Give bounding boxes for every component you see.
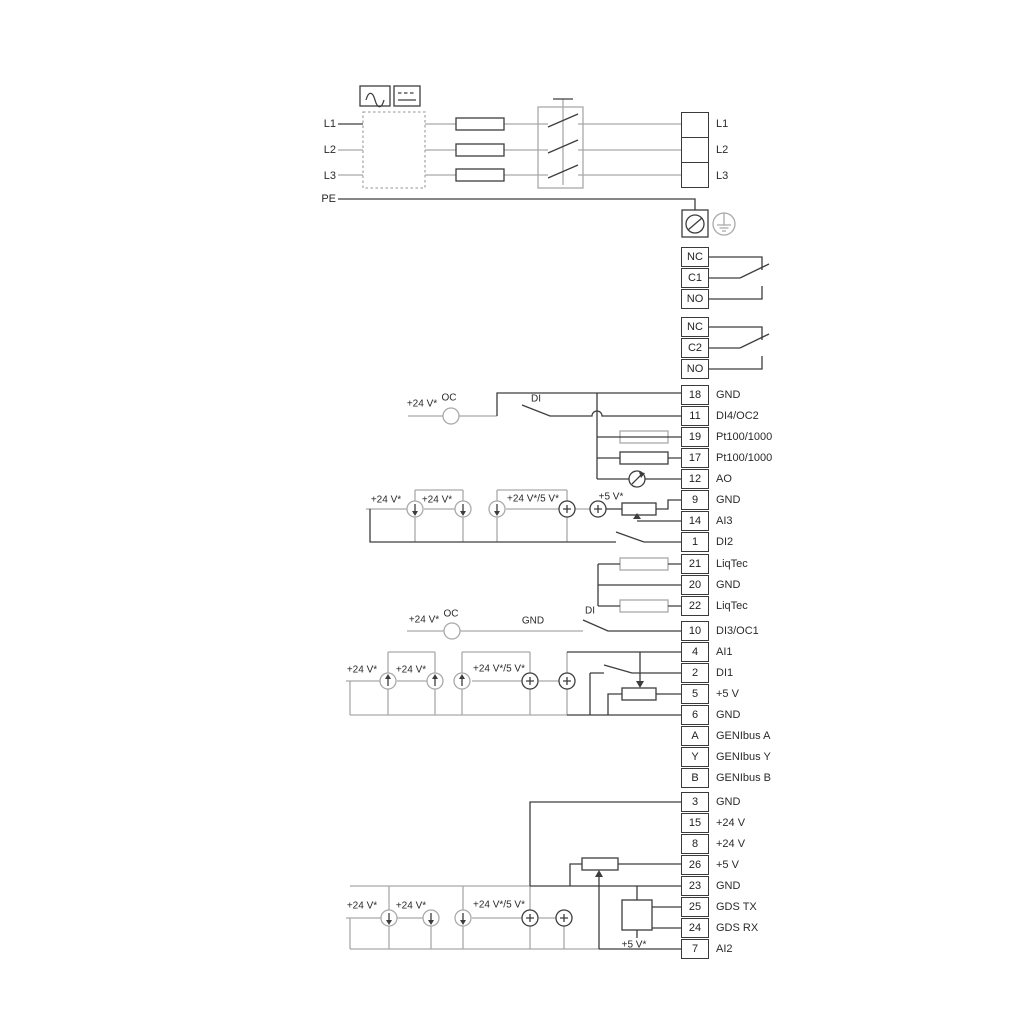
power-input-label-l1: L1 <box>324 118 336 130</box>
terminal-cell: B <box>681 768 709 788</box>
power-output-label-l1: L1 <box>716 118 728 130</box>
power-terminal-l2 <box>681 137 709 163</box>
voltage-annotation: +5 V* <box>622 940 647 951</box>
terminal-label: GND <box>716 796 740 808</box>
terminal-cell: 11 <box>681 406 709 426</box>
wiring-svg <box>0 0 1024 1024</box>
terminal-label: AO <box>716 473 732 485</box>
pe-label: PE <box>321 193 336 205</box>
voltage-annotation: +24 V* <box>422 495 452 506</box>
di-annotation: DI <box>585 606 595 617</box>
ac-symbol-icon <box>360 86 390 107</box>
fuse-symbol <box>456 118 504 130</box>
voltage-annotation: +5 V* <box>599 492 624 503</box>
terminal-label: AI1 <box>716 646 733 658</box>
power-input-label-l3: L3 <box>324 170 336 182</box>
terminal-cell: 26 <box>681 855 709 875</box>
terminal-cell: 6 <box>681 705 709 725</box>
terminal-label: Pt100/1000 <box>716 431 772 443</box>
terminal-c2: C2 <box>681 338 709 358</box>
gray-wiring <box>338 99 735 949</box>
gds-sensor-box <box>622 900 652 930</box>
voltage-annotation: +24 V*/5 V* <box>507 494 559 505</box>
terminal-label: DI2 <box>716 536 733 548</box>
terminal-label: GND <box>716 880 740 892</box>
power-terminal-l1 <box>681 112 709 138</box>
terminal-label: GND <box>716 494 740 506</box>
terminal-label: Pt100/1000 <box>716 452 772 464</box>
terminal-label: DI3/OC1 <box>716 625 759 637</box>
terminal-label: GND <box>716 709 740 721</box>
relay-contact-symbol <box>709 257 769 299</box>
terminal-label: GENIbus B <box>716 772 771 784</box>
terminal-cell: 17 <box>681 448 709 468</box>
fuse-symbol <box>456 144 504 156</box>
fuse-symbol <box>456 169 504 181</box>
terminal-cell: 9 <box>681 490 709 510</box>
terminal-cell: 7 <box>681 939 709 959</box>
pe-wire <box>338 199 695 211</box>
gnd-annotation: GND <box>522 616 544 627</box>
di-annotation: DI <box>531 394 541 405</box>
power-output-label-l2: L2 <box>716 144 728 156</box>
dc-symbol-icon <box>394 86 420 106</box>
terminal-label: GDS RX <box>716 922 758 934</box>
terminal-nc2: NC <box>681 317 709 337</box>
terminal-cell: 14 <box>681 511 709 531</box>
terminal-cell: 22 <box>681 596 709 616</box>
open-collector-circle-icon <box>444 623 460 639</box>
terminal-label: LiqTec <box>716 600 748 612</box>
oc-annotation: OC <box>444 609 459 620</box>
terminal-label: DI4/OC2 <box>716 410 759 422</box>
terminal-cell: 24 <box>681 918 709 938</box>
resistor-symbol-22 <box>620 600 668 612</box>
voltage-annotation: +24 V* <box>396 665 426 676</box>
voltage-annotation: +24 V* <box>347 665 377 676</box>
terminal-label: GENIbus A <box>716 730 770 742</box>
terminal-cell: 23 <box>681 876 709 896</box>
terminal-label: GDS TX <box>716 901 757 913</box>
potentiometer-symbol <box>622 688 656 700</box>
open-collector-circle-icon <box>443 408 459 424</box>
filter-dashed-box <box>363 112 425 188</box>
earth-ground-icon <box>713 213 735 235</box>
digital-input-switch <box>522 405 681 416</box>
power-terminal-l3 <box>681 162 709 188</box>
voltage-annotation: +24 V* <box>396 901 426 912</box>
analog-output-meter-icon <box>629 471 645 487</box>
terminal-cell: Y <box>681 747 709 767</box>
terminal-label: AI3 <box>716 515 733 527</box>
terminal-cell: 5 <box>681 684 709 704</box>
terminal-cell: 21 <box>681 554 709 574</box>
terminal-cell: 3 <box>681 792 709 812</box>
resistor-symbol-17 <box>620 452 668 464</box>
terminal-cell: 2 <box>681 663 709 683</box>
terminal-cell: 15 <box>681 813 709 833</box>
terminal-label: GND <box>716 579 740 591</box>
terminal-cell: 4 <box>681 642 709 662</box>
terminal-cell: 1 <box>681 532 709 552</box>
potentiometer-symbol <box>582 858 618 870</box>
terminal-label: +24 V <box>716 817 745 829</box>
terminal-cell: 12 <box>681 469 709 489</box>
terminal-label: AI2 <box>716 943 733 955</box>
terminal-label: LiqTec <box>716 558 748 570</box>
power-input-label-l2: L2 <box>324 144 336 156</box>
voltage-annotation: +24 V*/5 V* <box>473 900 525 911</box>
voltage-annotation: +24 V* <box>371 495 401 506</box>
terminal-cell: 18 <box>681 385 709 405</box>
terminal-label: DI1 <box>716 667 733 679</box>
terminal-nc1: NC <box>681 247 709 267</box>
terminal-cell: 10 <box>681 621 709 641</box>
relay-contact-symbol <box>709 327 769 369</box>
power-output-label-l3: L3 <box>716 170 728 182</box>
voltage-annotation: +24 V* <box>347 901 377 912</box>
terminal-label: +5 V <box>716 859 739 871</box>
wiring-diagram: L1 L2 L3 PE L1 L2 L3 NC C1 NO NC C2 NO 1… <box>0 0 1024 1024</box>
terminal-label: GND <box>716 389 740 401</box>
voltage-annotation: +24 V* <box>409 615 439 626</box>
potentiometer-symbol <box>622 503 656 515</box>
digital-input-switch <box>583 620 681 631</box>
terminal-cell: 20 <box>681 575 709 595</box>
terminal-cell: 25 <box>681 897 709 917</box>
voltage-annotation: +24 V*/5 V* <box>473 664 525 675</box>
pe-terminal-symbol <box>682 210 708 237</box>
terminal-no2: NO <box>681 359 709 379</box>
terminal-label: GENIbus Y <box>716 751 771 763</box>
resistor-symbol-21 <box>620 558 668 570</box>
terminal-no1: NO <box>681 289 709 309</box>
terminal-cell: A <box>681 726 709 746</box>
terminal-label: +5 V <box>716 688 739 700</box>
terminal-cell: 8 <box>681 834 709 854</box>
terminal-label: +24 V <box>716 838 745 850</box>
terminal-c1: C1 <box>681 268 709 288</box>
terminal-cell: 19 <box>681 427 709 447</box>
oc-annotation: OC <box>442 393 457 404</box>
voltage-annotation: +24 V* <box>407 399 437 410</box>
